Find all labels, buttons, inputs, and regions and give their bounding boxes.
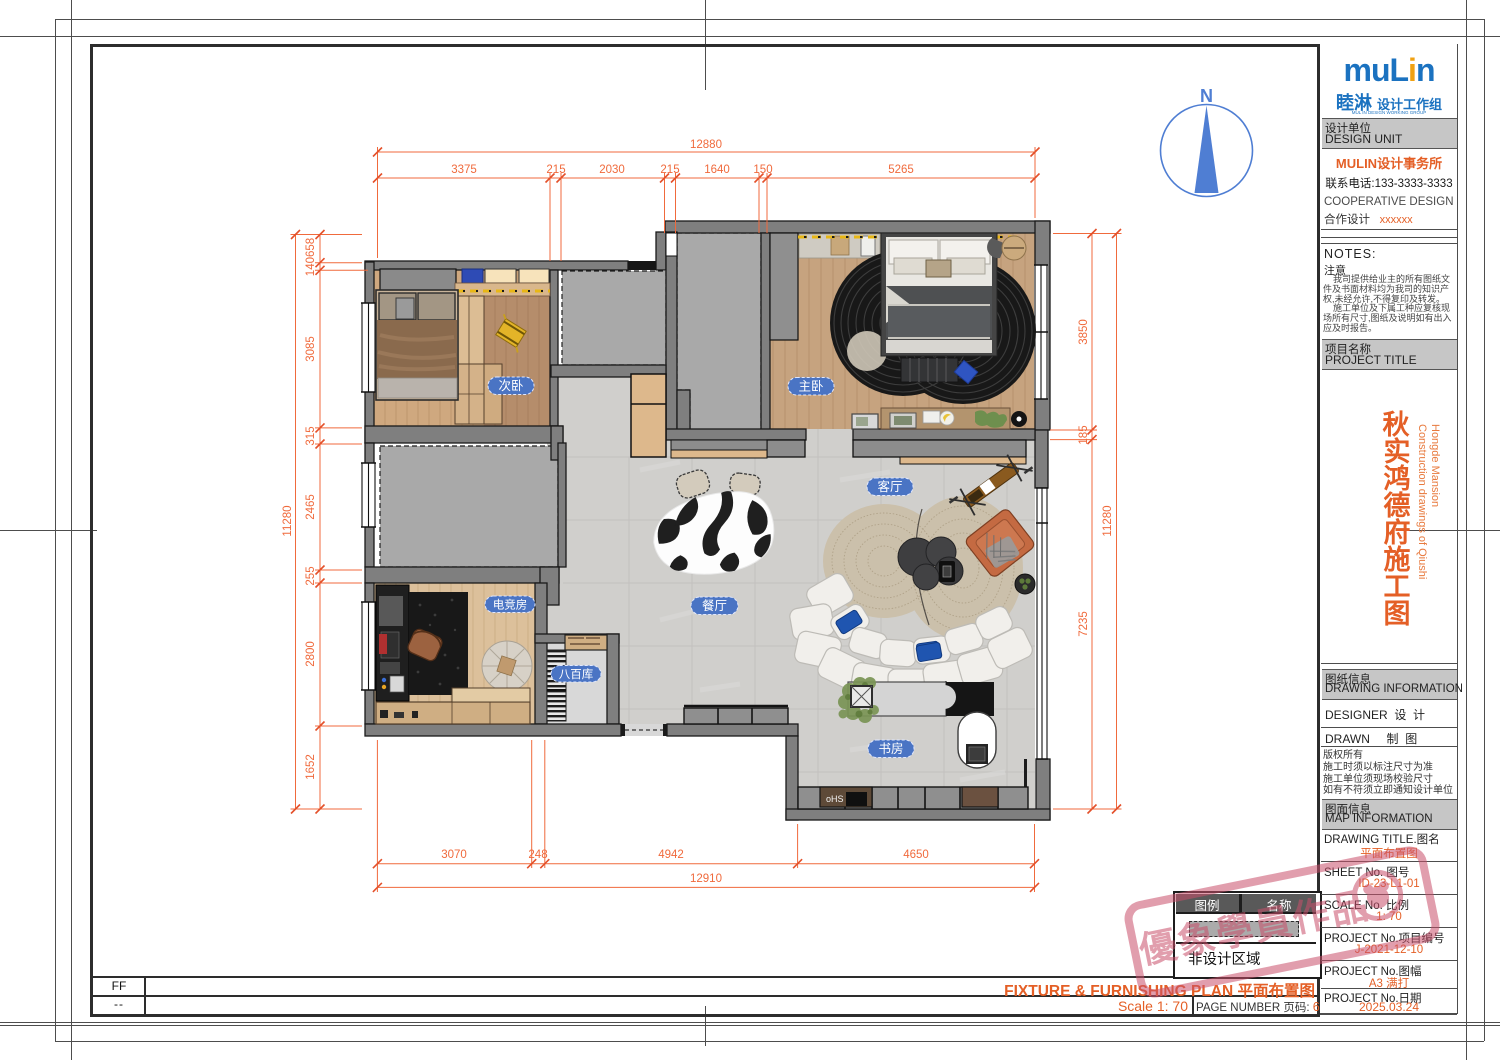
svg-text:主卧: 主卧 [798, 380, 823, 394]
svg-text:电竞房: 电竞房 [493, 598, 528, 612]
svg-text:3850: 3850 [1078, 319, 1090, 345]
svg-text:3375: 3375 [451, 164, 477, 176]
svg-text:255: 255 [305, 566, 317, 585]
svg-text:315: 315 [305, 426, 317, 445]
svg-text:5265: 5265 [888, 164, 914, 176]
svg-text:4942: 4942 [658, 849, 684, 861]
svg-text:2465: 2465 [305, 494, 317, 520]
svg-text:2030: 2030 [599, 164, 625, 176]
svg-text:11280: 11280 [1102, 505, 1114, 536]
svg-text:oHS: oHS [826, 794, 844, 804]
svg-text:7235: 7235 [1078, 611, 1090, 637]
svg-text:餐厅: 餐厅 [702, 598, 727, 613]
svg-text:书房: 书房 [878, 741, 903, 756]
svg-text:1652: 1652 [305, 754, 317, 780]
svg-text:次卧: 次卧 [498, 379, 523, 393]
svg-text:140658: 140658 [305, 238, 317, 276]
svg-text:11280: 11280 [282, 505, 294, 536]
svg-text:3070: 3070 [441, 849, 467, 861]
svg-text:1640: 1640 [704, 164, 730, 176]
svg-text:Hongde Mansion: Hongde Mansion [1429, 424, 1441, 507]
svg-text:12880: 12880 [690, 139, 722, 151]
svg-text:3085: 3085 [305, 336, 317, 362]
svg-text:215: 215 [546, 164, 565, 176]
svg-text:185: 185 [1078, 425, 1090, 444]
svg-text:215: 215 [660, 164, 679, 176]
svg-text:N: N [1200, 86, 1213, 106]
svg-text:Construction drawings of Qiush: Construction drawings of Qiushi [1416, 424, 1428, 579]
svg-text:秋实鸿德府施工图: 秋实鸿德府施工图 [1383, 410, 1411, 629]
svg-text:12910: 12910 [690, 873, 722, 885]
svg-text:2800: 2800 [305, 641, 317, 667]
svg-text:150: 150 [753, 164, 772, 176]
svg-text:八百库: 八百库 [559, 667, 594, 681]
svg-text:248: 248 [528, 849, 547, 861]
svg-text:客厅: 客厅 [877, 479, 902, 494]
svg-text:4650: 4650 [903, 849, 929, 861]
